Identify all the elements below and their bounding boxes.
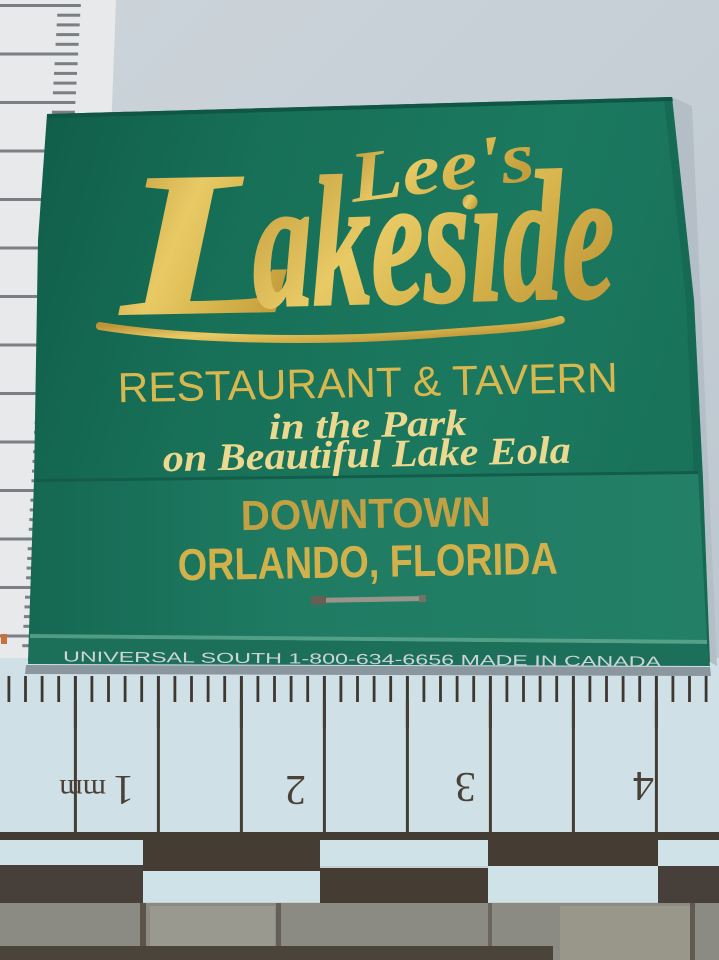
svg-text:ORLANDO, FLORIDA: ORLANDO, FLORIDA <box>177 533 558 591</box>
svg-text:1: 1 <box>113 766 134 812</box>
svg-text:mm: mm <box>59 773 106 806</box>
svg-text:DOWNTOWN: DOWNTOWN <box>240 488 491 539</box>
svg-text:4: 4 <box>633 762 654 808</box>
svg-text:2: 2 <box>285 766 306 812</box>
svg-text:on Beautiful Lake Eola: on Beautiful Lake Eola <box>162 429 571 481</box>
svg-text:3: 3 <box>455 763 476 809</box>
svg-text:akesıde: akesıde <box>250 133 617 347</box>
